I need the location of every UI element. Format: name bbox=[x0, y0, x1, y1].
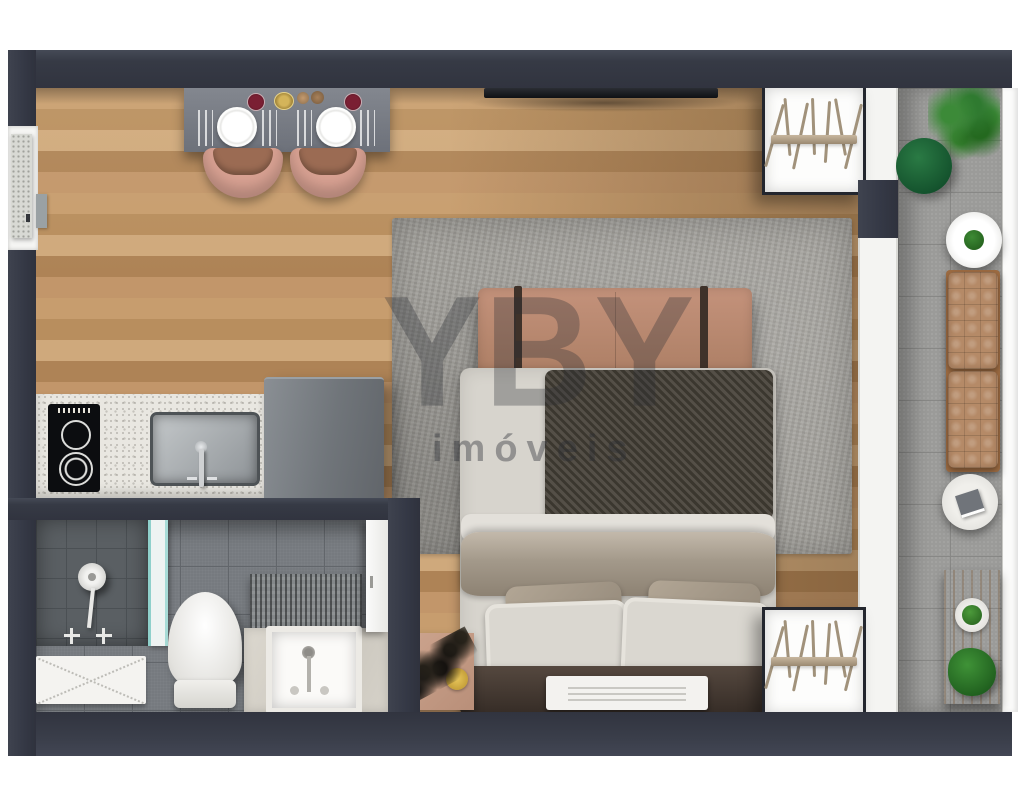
pepper-shaker bbox=[311, 91, 324, 104]
book bbox=[955, 489, 985, 518]
entry-mat bbox=[36, 194, 47, 228]
dinner-plate bbox=[316, 107, 356, 147]
wardrobe-open bbox=[762, 85, 866, 195]
bench-cushion bbox=[948, 371, 998, 468]
balcony-railing bbox=[1002, 88, 1018, 712]
box-plant bbox=[948, 648, 996, 696]
wall-tv bbox=[484, 88, 718, 98]
bench-cushion bbox=[948, 272, 998, 369]
faucet-handle bbox=[187, 477, 197, 480]
topiary-plant bbox=[896, 138, 952, 194]
faucet bbox=[199, 449, 204, 487]
toilet-base bbox=[174, 680, 236, 708]
entry-door-handle bbox=[26, 214, 30, 222]
table-plant bbox=[964, 230, 984, 250]
kitchen-sink bbox=[150, 412, 260, 486]
wall-window-pier bbox=[858, 180, 898, 238]
sink-handle bbox=[320, 686, 329, 695]
shower-glass-door bbox=[148, 518, 168, 646]
potted-plant-leaves bbox=[962, 605, 982, 625]
shower-handle bbox=[70, 628, 73, 644]
cooktop bbox=[48, 404, 100, 492]
clothes-rail bbox=[771, 135, 857, 144]
sofa-seam bbox=[615, 292, 616, 370]
gold-dish bbox=[274, 92, 294, 110]
bathroom-door bbox=[366, 520, 390, 632]
cooktop-controls bbox=[58, 408, 92, 413]
cutlery-icon bbox=[297, 110, 312, 146]
entry-door bbox=[11, 134, 32, 238]
herringbone-throw bbox=[545, 370, 773, 520]
shower-head bbox=[78, 563, 106, 591]
wall-divider-kitchen-bath bbox=[8, 498, 420, 520]
faucet-handle bbox=[207, 477, 217, 480]
chair-seat bbox=[299, 148, 357, 175]
balcony-table-white bbox=[946, 212, 1002, 268]
potted-plant bbox=[955, 598, 989, 632]
shower-handle bbox=[102, 628, 105, 644]
balcony-table-marble bbox=[942, 474, 998, 530]
wardrobe-open bbox=[762, 607, 866, 717]
cutlery-icon bbox=[198, 110, 213, 146]
shower-head-center bbox=[88, 573, 96, 581]
chair-seat bbox=[213, 148, 274, 175]
vanity-sink-basin bbox=[266, 626, 362, 714]
clothes-rail bbox=[771, 657, 857, 666]
floor-plan: YBY imóveis bbox=[0, 0, 1024, 798]
wall-top bbox=[8, 50, 1012, 88]
bath-mat bbox=[36, 656, 146, 704]
sofa-strap bbox=[514, 286, 522, 376]
wall-divider-bath-bedroom bbox=[388, 498, 420, 712]
door-handle bbox=[370, 576, 373, 588]
burner bbox=[61, 420, 91, 450]
sink-handle bbox=[290, 686, 299, 695]
cutlery-icon bbox=[262, 110, 277, 146]
wall-bottom bbox=[8, 712, 1012, 756]
cutlery-icon bbox=[360, 110, 375, 146]
sofa-strap bbox=[700, 286, 708, 376]
burner bbox=[59, 452, 93, 486]
sink-faucet bbox=[307, 656, 311, 692]
dinner-plate bbox=[217, 107, 257, 147]
vent-slats bbox=[568, 683, 686, 703]
salt-shaker bbox=[297, 92, 309, 104]
wine-glass-icon bbox=[344, 93, 362, 111]
wine-glass-icon bbox=[247, 93, 265, 111]
refrigerator bbox=[264, 377, 384, 502]
headboard-vent-panel bbox=[546, 676, 708, 710]
